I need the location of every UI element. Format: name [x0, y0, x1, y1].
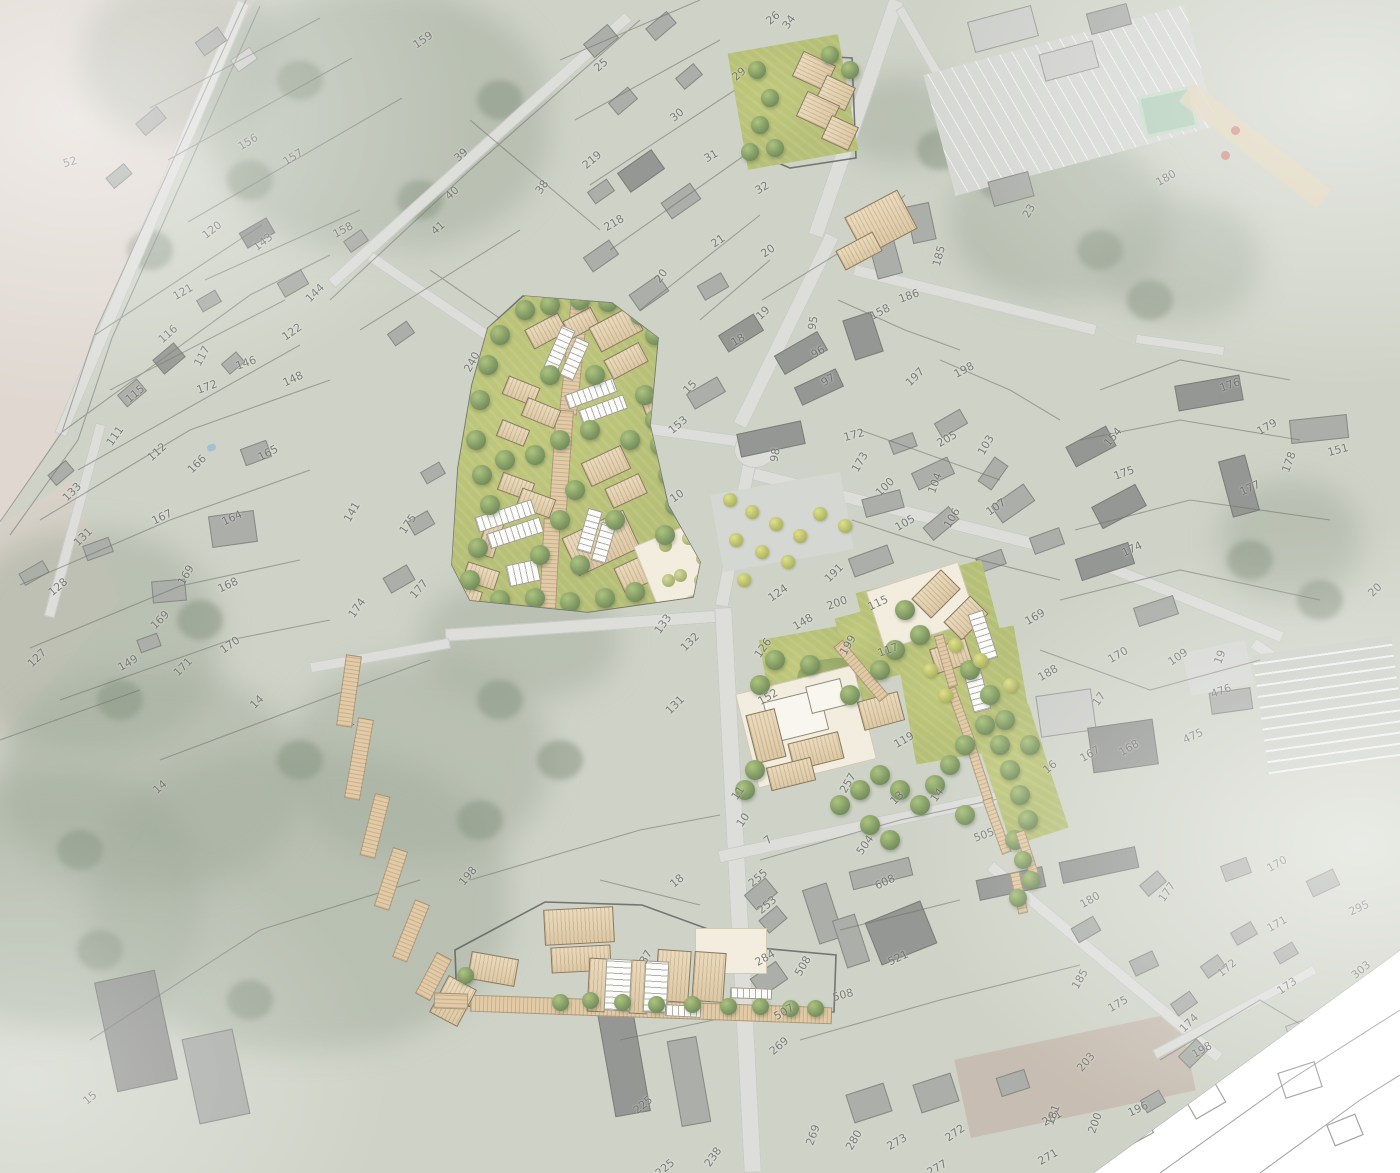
parcel-number-label: 97 [819, 372, 837, 389]
parcel-number-label: 148 [281, 370, 305, 389]
parcel-number-label: 180 [1154, 168, 1178, 188]
parcel-number-label: 100 [874, 476, 897, 499]
parcel-number-label: 203 [1075, 1050, 1097, 1073]
parcel-number-label: 284 [753, 948, 777, 968]
parcel-number-label: 153 [666, 414, 689, 436]
parcel-number-label: 7 [762, 834, 774, 847]
parcel-number-label: 19 [754, 304, 772, 322]
parcel-number-label: 95 [806, 315, 819, 331]
parcel-number-label: 158 [331, 220, 355, 240]
parcel-number-label: 199 [838, 633, 858, 657]
parcel-number-label: 19 [1212, 649, 1227, 666]
parcel-number-label: 200 [825, 594, 848, 612]
parcel-number-label: 39 [452, 146, 470, 164]
parcel-number-label: 166 [186, 453, 209, 476]
parcel-number-label: 205 [935, 429, 959, 449]
parcel-labels-layer: 5215915615739404138158120143121116117146… [0, 0, 1400, 1173]
parcel-number-label: 115 [866, 594, 890, 613]
parcel-number-label: 172 [1215, 957, 1238, 979]
parcel-number-label: 152 [756, 687, 780, 707]
parcel-number-label: 508 [831, 987, 854, 1003]
parcel-number-label: 507 [772, 1002, 796, 1022]
parcel-number-label: 20 [652, 267, 669, 285]
parcel-number-label: 186 [897, 287, 920, 305]
parcel-number-label: 170 [218, 634, 242, 655]
parcel-number-label: 103 [976, 433, 996, 457]
parcel-number-label: 146 [234, 354, 257, 372]
parcel-number-label: 131 [664, 694, 687, 717]
parcel-number-label: 148 [791, 612, 815, 632]
parcel-number-label: 170 [1106, 645, 1130, 665]
parcel-number-label: 156 [236, 132, 260, 152]
parcel-number-label: 257 [838, 771, 858, 795]
parcel-number-label: 14 [248, 693, 266, 711]
parcel-number-label: 176 [1218, 376, 1241, 394]
parcel-number-label: 15 [681, 378, 699, 396]
parcel-number-label: 25 [592, 56, 610, 73]
parcel-number-label: 174 [1178, 1012, 1201, 1035]
parcel-number-label: 175 [1112, 464, 1135, 482]
parcel-number-label: 16 [1041, 758, 1059, 775]
parcel-number-label: 20 [759, 242, 777, 259]
parcel-number-label: 120 [200, 219, 223, 241]
parcel-number-label: 238 [702, 1145, 723, 1169]
parcel-number-label: 112 [146, 441, 169, 463]
parcel-number-label: 608 [873, 873, 897, 892]
parcel-number-label: 124 [766, 582, 790, 603]
parcel-number-label: 295 [1347, 899, 1371, 918]
parcel-number-label: 167 [150, 508, 174, 527]
parcel-number-label: 271 [1036, 1147, 1060, 1167]
parcel-number-label: 177 [408, 577, 430, 600]
parcel-number-label: 133 [61, 481, 84, 504]
parcel-number-label: 116 [157, 323, 180, 345]
parcel-number-label: 521 [886, 949, 910, 968]
parcel-number-label: 172 [195, 378, 218, 396]
parcel-number-label: 111 [104, 424, 125, 448]
parcel-number-label: 168 [1117, 738, 1141, 758]
parcel-number-label: 476 [1209, 682, 1232, 700]
parcel-number-label: 40 [443, 184, 461, 202]
parcel-number-label: 159 [411, 29, 435, 50]
parcel-number-label: 119 [892, 730, 916, 750]
parcel-number-label: 21 [709, 232, 727, 249]
parcel-number-label: 106 [942, 506, 962, 530]
parcel-number-label: 41 [429, 219, 447, 237]
parcel-number-label: 225 [653, 1157, 676, 1173]
parcel-number-label: 144 [304, 282, 327, 305]
parcel-number-label: 198 [457, 864, 479, 887]
parcel-number-label: 171 [1265, 914, 1289, 934]
parcel-number-label: 173 [1275, 975, 1299, 996]
parcel-number-label: 32 [753, 180, 771, 197]
parcel-number-label: 277 [925, 1158, 949, 1173]
parcel-number-label: 196 [1126, 1100, 1150, 1119]
parcel-number-label: 128 [46, 576, 69, 598]
parcel-number-label: 30 [668, 106, 686, 123]
parcel-number-label: 175 [1106, 994, 1130, 1014]
parcel-number-label: 169 [1023, 607, 1047, 627]
parcel-number-label: 174 [1120, 540, 1144, 559]
parcel-number-label: 169 [149, 609, 172, 632]
parcel-number-label: 504 [854, 833, 875, 857]
parcel-number-label: 11 [729, 784, 746, 802]
parcel-number-label: 154 [1102, 425, 1124, 448]
parcel-number-label: 98 [768, 447, 781, 463]
parcel-number-label: 269 [804, 1123, 822, 1146]
parcel-number-label: 132 [679, 631, 702, 654]
parcel-number-label: 218 [602, 213, 626, 233]
parcel-number-label: 177 [1238, 479, 1262, 498]
parcel-number-label: 122 [280, 321, 304, 342]
parcel-number-label: 273 [885, 1132, 909, 1152]
parcel-number-label: 180 [1078, 890, 1102, 910]
parcel-number-label: 117 [876, 641, 899, 659]
parcel-number-label: 10 [668, 487, 686, 504]
parcel-number-label: 240 [462, 350, 482, 374]
parcel-number-label: 164 [220, 509, 244, 528]
parcel-number-label: 23 [1021, 202, 1038, 220]
parcel-number-label: 15 [81, 1089, 99, 1106]
parcel-number-label: 175 [397, 512, 418, 536]
parcel-number-label: 133 [652, 612, 673, 636]
parcel-number-label: 177 [1156, 880, 1177, 904]
parcel-number-label: 225 [631, 1094, 654, 1116]
parcel-number-label: 109 [1166, 646, 1190, 667]
parcel-number-label: 171 [172, 656, 195, 679]
parcel-number-label: 505 [972, 826, 995, 844]
parcel-number-label: 131 [72, 526, 95, 549]
parcel-number-label: 179 [1255, 417, 1279, 437]
parcel-number-label: 158 [868, 302, 892, 322]
parcel-number-label: 18 [668, 872, 686, 889]
parcel-number-label: 149 [116, 653, 140, 673]
parcel-number-label: 255 [746, 867, 769, 889]
parcel-number-label: 200 [1086, 1111, 1104, 1134]
parcel-number-label: 34 [780, 13, 797, 31]
parcel-number-label: 197 [904, 366, 927, 389]
parcel-number-label: 174 [346, 596, 367, 620]
parcel-number-label: 107 [984, 496, 1008, 517]
parcel-number-label: 280 [844, 1128, 864, 1152]
parcel-number-label: 188 [1036, 663, 1060, 683]
parcel-number-label: 170 [1265, 854, 1289, 874]
parcel-number-label: 185 [931, 244, 947, 267]
parcel-number-label: 168 [216, 576, 240, 595]
parcel-number-label: 143 [251, 231, 274, 253]
parcel-number-label: 508 [793, 954, 813, 978]
parcel-number-label: 151 [1326, 442, 1349, 458]
parcel-number-label: 198 [1190, 1040, 1214, 1060]
parcel-number-label: 20 [1366, 581, 1384, 599]
parcel-number-label: 269 [767, 1035, 790, 1057]
parcel-number-label: 181 [1044, 1103, 1062, 1126]
parcel-number-label: 165 [256, 443, 280, 463]
parcel-number-label: 191 [823, 562, 846, 585]
parcel-number-label: 38 [533, 178, 550, 196]
parcel-number-label: 185 [1070, 967, 1090, 991]
parcel-number-label: 17 [1090, 690, 1107, 708]
parcel-number-label: 172 [842, 427, 865, 443]
parcel-number-label: 13 [888, 789, 906, 807]
site-plan-canvas[interactable]: ◁▷ ◁▷ 5215915615739404138158120143121116… [0, 0, 1400, 1173]
parcel-number-label: 29 [730, 65, 748, 82]
parcel-number-label: 52 [62, 155, 78, 169]
parcel-number-label: 117 [192, 344, 212, 368]
parcel-number-label: 14 [928, 786, 945, 804]
parcel-number-label: 105 [893, 513, 917, 533]
parcel-number-label: 104 [926, 471, 944, 494]
parcel-number-label: 173 [850, 450, 870, 474]
parcel-number-label: 127 [26, 647, 49, 670]
parcel-number-label: 121 [171, 282, 195, 302]
parcel-number-label: 272 [943, 1122, 967, 1143]
parcel-number-label: 219 [580, 149, 603, 171]
parcel-number-label: 157 [281, 147, 305, 167]
parcel-number-label: 37 [638, 948, 655, 966]
parcel-number-label: 18 [729, 332, 747, 349]
parcel-number-label: 253 [755, 894, 778, 916]
parcel-number-label: 169 [176, 563, 196, 587]
parcel-number-label: 178 [1280, 450, 1298, 473]
parcel-number-label: 14 [151, 778, 169, 796]
parcel-number-label: 31 [702, 148, 720, 165]
parcel-number-label: 141 [342, 500, 362, 524]
parcel-number-label: 167 [1078, 744, 1102, 764]
parcel-number-label: 198 [952, 360, 976, 380]
parcel-number-label: 10 [734, 811, 751, 829]
parcel-number-label: 96 [809, 344, 827, 361]
parcel-number-label: 126 [752, 636, 773, 660]
parcel-number-label: 115 [123, 383, 146, 405]
parcel-number-label: 475 [1181, 727, 1205, 746]
